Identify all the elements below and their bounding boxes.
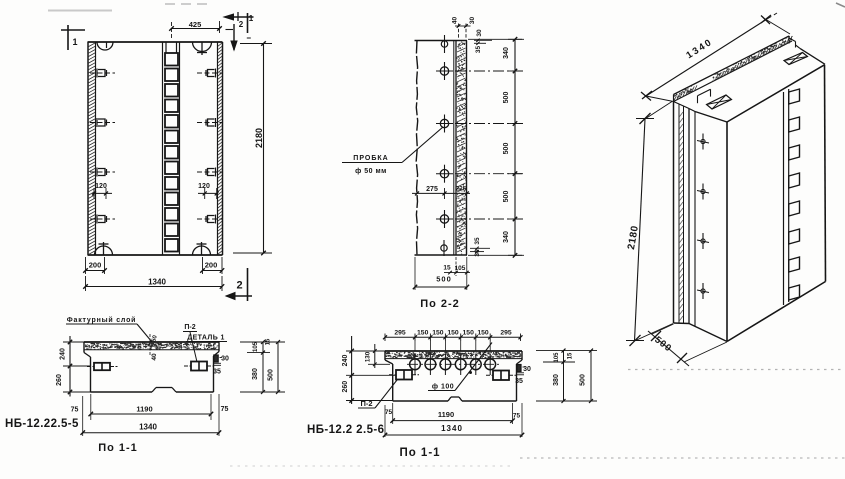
svg-text:30: 30 [476, 29, 483, 37]
svg-text:П-2: П-2 [360, 399, 372, 408]
svg-text:ф 50 мм: ф 50 мм [355, 168, 387, 175]
svg-text:75: 75 [221, 406, 229, 413]
svg-text:380: 380 [252, 368, 259, 380]
svg-text:НБ-12.22.5-5: НБ-12.22.5-5 [5, 418, 79, 430]
svg-text:120: 120 [198, 183, 210, 190]
svg-text:15: 15 [266, 338, 272, 345]
svg-text:По 2-2: По 2-2 [420, 298, 460, 310]
svg-text:260: 260 [342, 381, 349, 393]
svg-text:2180: 2180 [254, 128, 264, 148]
svg-text:260: 260 [56, 374, 63, 386]
svg-text:200: 200 [89, 261, 102, 270]
svg-text:500: 500 [503, 143, 510, 155]
svg-text:1: 1 [249, 14, 254, 23]
svg-text:ДЕТАЛЬ 1: ДЕТАЛЬ 1 [187, 335, 225, 342]
svg-text:105: 105 [554, 352, 560, 363]
svg-text:1340: 1340 [148, 278, 166, 287]
svg-text:15: 15 [443, 265, 451, 272]
svg-text:150: 150 [463, 330, 475, 337]
svg-text:30: 30 [221, 356, 229, 363]
svg-text:Фактурный слой: Фактурный слой [67, 316, 137, 324]
svg-text:120: 120 [95, 183, 107, 190]
svg-text:340: 340 [503, 231, 510, 243]
svg-text:75: 75 [71, 407, 79, 414]
svg-text:30: 30 [469, 17, 476, 25]
svg-text:ПРОБКА: ПРОБКА [353, 155, 388, 162]
svg-text:425: 425 [189, 20, 202, 29]
svg-text:НБ-12.2 2.5-6: НБ-12.2 2.5-6 [307, 424, 384, 436]
svg-text:1340: 1340 [139, 423, 157, 432]
svg-text:380: 380 [553, 374, 560, 386]
svg-text:295: 295 [500, 330, 512, 337]
svg-text:500: 500 [503, 92, 510, 104]
svg-text:1190: 1190 [136, 405, 152, 414]
svg-text:75: 75 [385, 409, 393, 416]
svg-text:35: 35 [475, 46, 482, 54]
svg-text:240: 240 [342, 355, 349, 367]
svg-text:2: 2 [239, 20, 244, 29]
svg-text:500: 500 [580, 374, 587, 386]
svg-text:150: 150 [417, 330, 429, 337]
svg-text:130: 130 [365, 351, 372, 362]
svg-text:150: 150 [447, 330, 459, 337]
svg-text:200: 200 [205, 261, 218, 270]
svg-text:1190: 1190 [438, 410, 454, 419]
svg-text:225: 225 [456, 186, 467, 193]
svg-text:15: 15 [568, 352, 574, 359]
svg-text:40: 40 [452, 17, 459, 25]
svg-text:240: 240 [60, 348, 67, 360]
svg-text:По 1-1: По 1-1 [98, 442, 138, 454]
svg-text:35: 35 [515, 378, 523, 385]
svg-text:П-2: П-2 [184, 324, 195, 331]
svg-text:150: 150 [432, 330, 444, 337]
svg-text:2: 2 [236, 280, 242, 292]
svg-text:105: 105 [253, 341, 259, 352]
svg-text:500: 500 [436, 275, 452, 284]
svg-text:1: 1 [72, 37, 77, 47]
svg-text:ф 100: ф 100 [432, 384, 454, 391]
svg-text:150: 150 [477, 330, 489, 337]
svg-text:40: 40 [151, 353, 158, 361]
svg-text:По 1-1: По 1-1 [399, 447, 440, 459]
svg-text:35: 35 [474, 237, 481, 245]
svg-text:500: 500 [268, 369, 275, 381]
svg-text:295: 295 [394, 330, 406, 337]
svg-text:275: 275 [426, 186, 438, 193]
svg-text:1340: 1340 [441, 424, 463, 433]
svg-text:340: 340 [503, 47, 510, 59]
svg-text:500: 500 [503, 191, 510, 203]
svg-text:35: 35 [213, 369, 221, 376]
